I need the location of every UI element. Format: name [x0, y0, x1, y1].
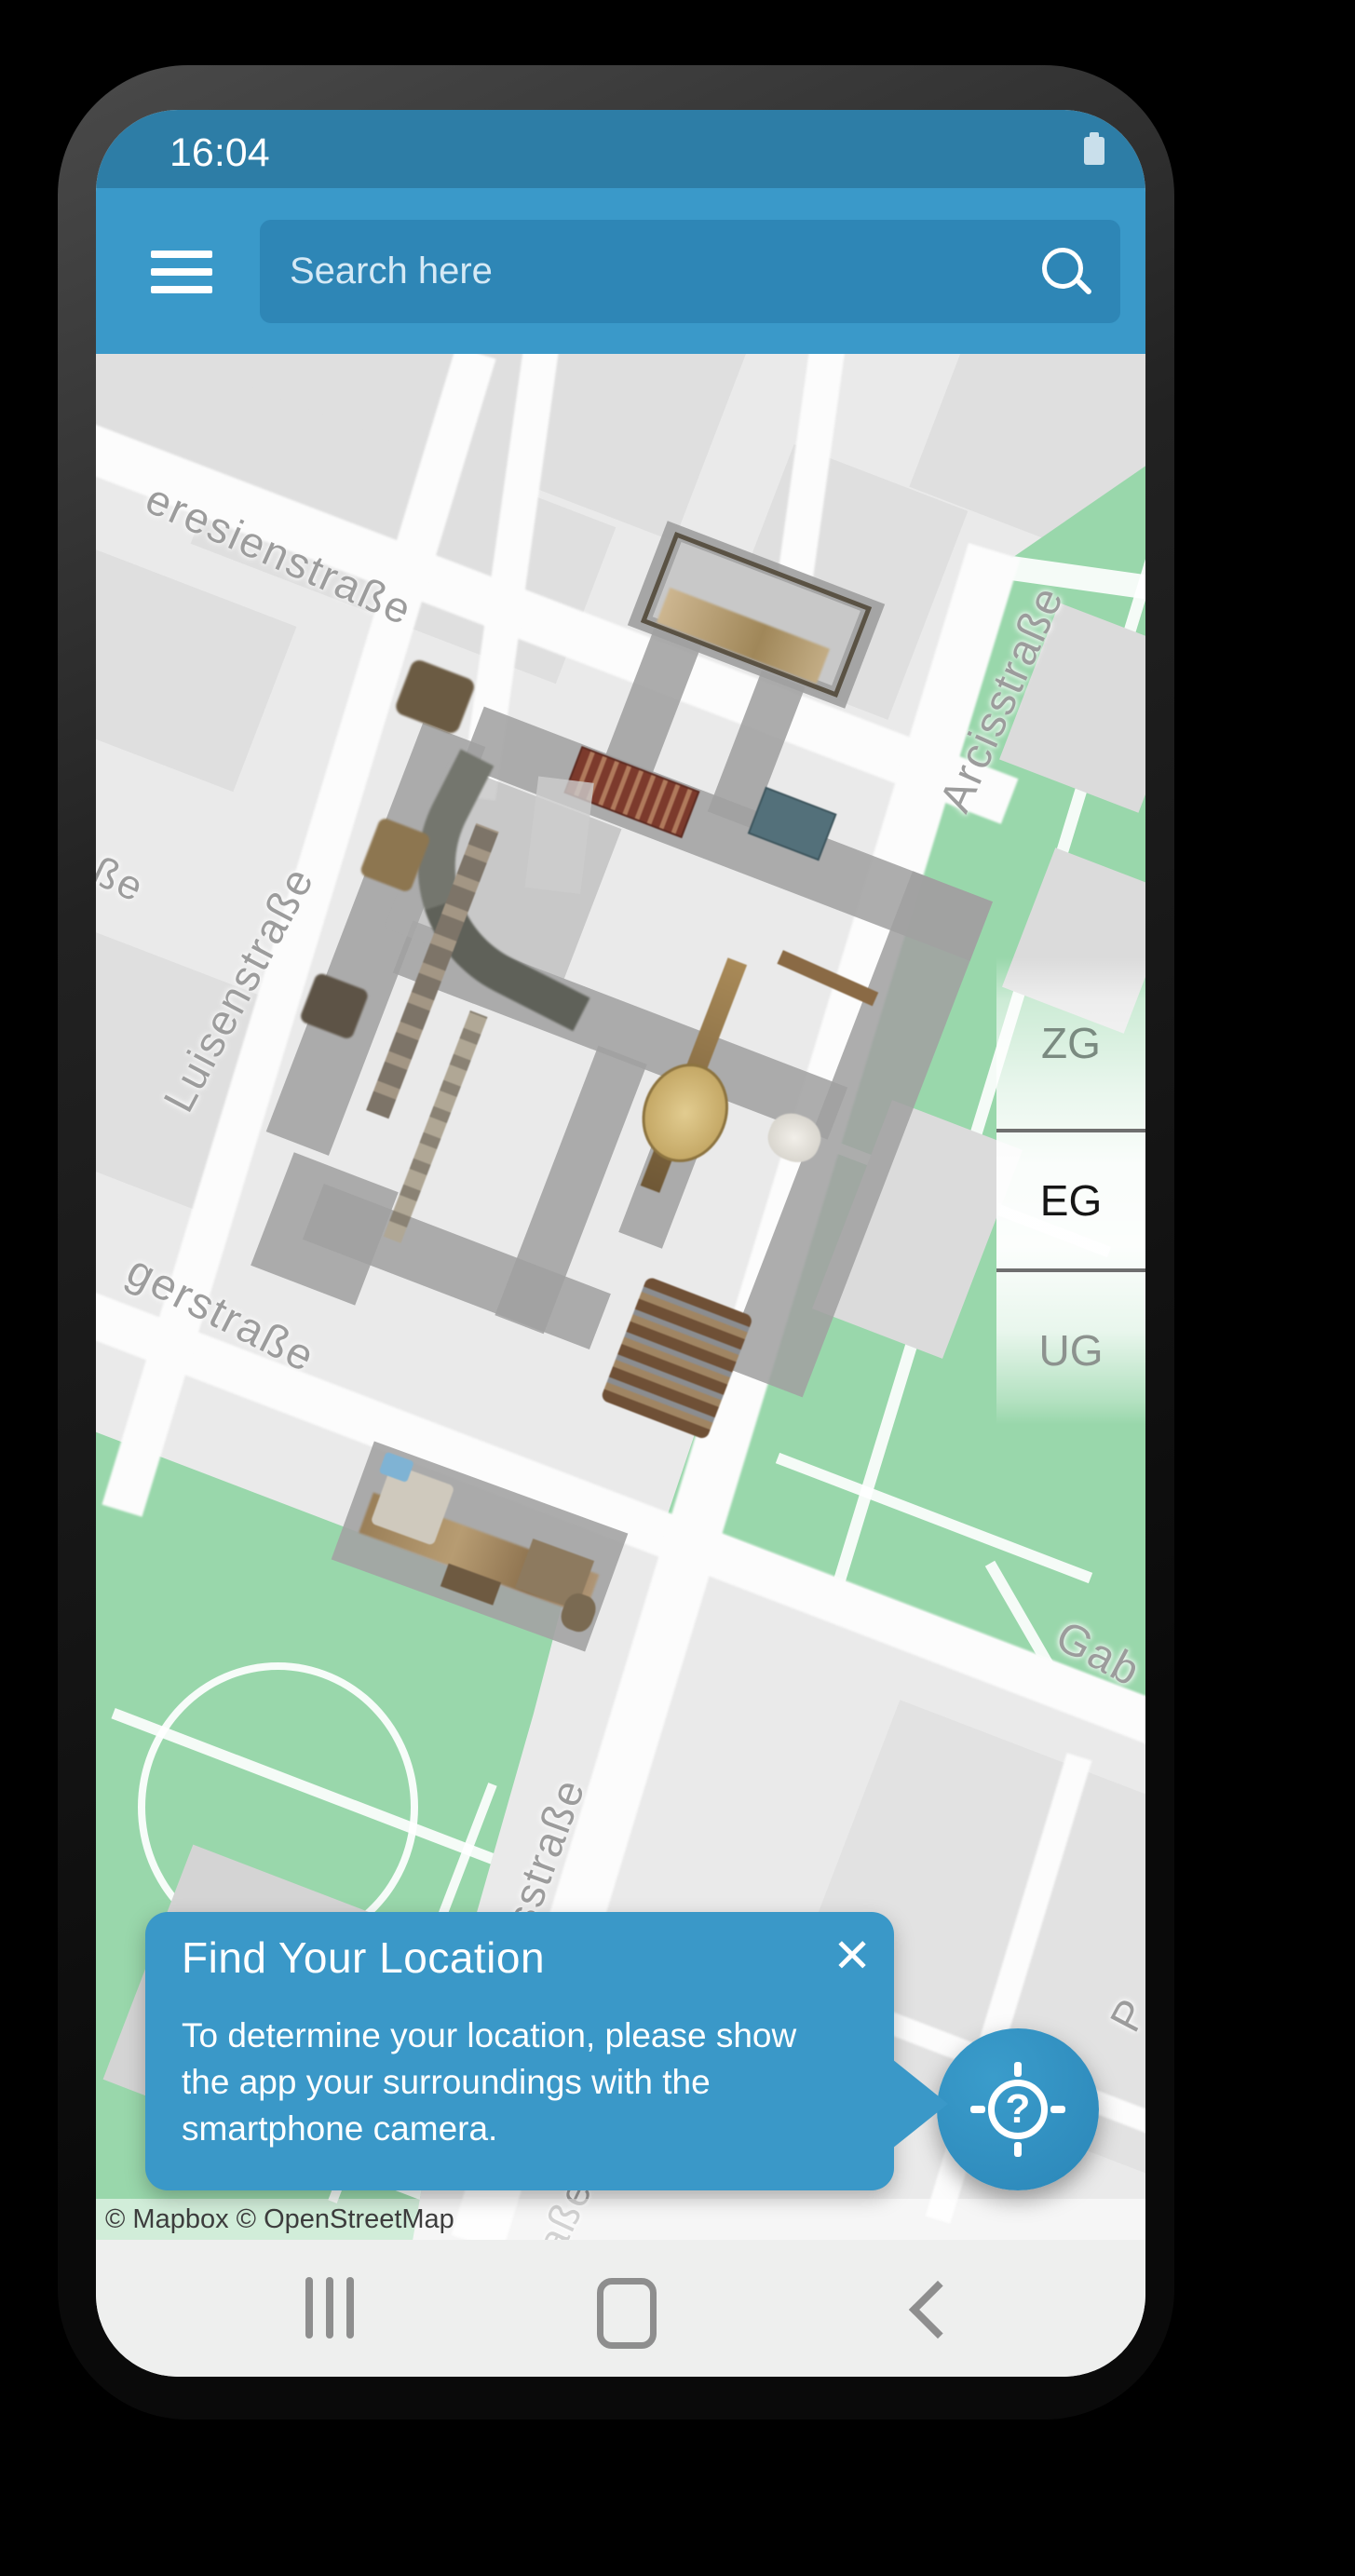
floor-option-zg[interactable]: ZG: [996, 957, 1145, 1129]
app-bar: Search here: [96, 188, 1145, 354]
floor-option-ug[interactable]: UG: [996, 1272, 1145, 1425]
phone-frame: 16:04 Search here: [58, 65, 1174, 2420]
find-location-popup: Find Your Location ✕ To determine your l…: [145, 1912, 894, 2190]
status-time: 16:04: [169, 130, 270, 176]
phone-screen: 16:04 Search here: [96, 110, 1145, 2377]
street-label-fragment: ße: [96, 848, 152, 913]
search-icon[interactable]: [1042, 248, 1083, 289]
map-canvas[interactable]: eresienstraße Arcisstraße Luisenstraße g…: [96, 354, 1145, 2240]
search-input[interactable]: Search here: [260, 220, 1120, 323]
map-block: [96, 540, 296, 793]
close-icon[interactable]: ✕: [833, 1929, 872, 1983]
battery-icon: [1084, 137, 1104, 165]
map-attribution-bar: © Mapbox © OpenStreetMap: [96, 2199, 1145, 2240]
back-icon[interactable]: [909, 2281, 967, 2339]
popup-pointer: [892, 2059, 948, 2149]
popup-body: To determine your location, please show …: [182, 2013, 833, 2152]
popup-title: Find Your Location: [182, 1932, 545, 1983]
floor-option-eg-label: EG: [1040, 1175, 1102, 1226]
hamburger-menu-icon[interactable]: [151, 251, 212, 304]
floor-option-eg-selected[interactable]: EG: [996, 1132, 1145, 1268]
floor-option-zg-label: ZG: [1041, 1018, 1101, 1068]
search-placeholder: Search here: [290, 220, 493, 323]
floor-selector[interactable]: ZG EG UG: [996, 957, 1145, 1425]
home-icon[interactable]: [597, 2278, 657, 2349]
android-nav-bar: [96, 2240, 1145, 2377]
floor-option-ug-label: UG: [1039, 1325, 1104, 1376]
recents-icon[interactable]: [299, 2277, 360, 2343]
status-bar: 16:04: [96, 110, 1145, 188]
map-attribution: © Mapbox © OpenStreetMap: [105, 2199, 1145, 2240]
locate-me-button[interactable]: ?: [937, 2028, 1099, 2190]
